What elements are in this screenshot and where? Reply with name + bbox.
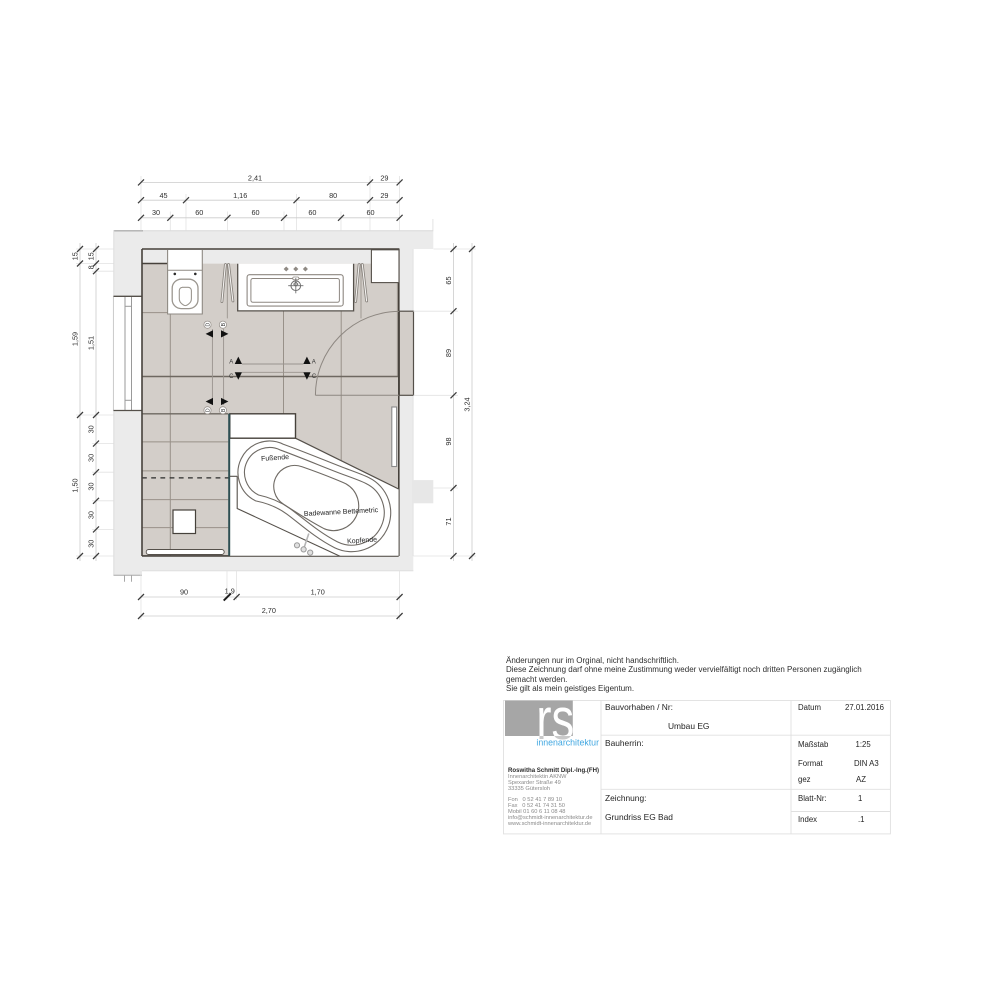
svg-text:D: D [206,408,212,412]
svg-text:80: 80 [329,191,337,200]
svg-text:1,59: 1,59 [71,332,80,346]
svg-text:1,51: 1,51 [86,336,95,350]
svg-text:B: B [221,323,227,327]
svg-text:15: 15 [71,252,80,260]
svg-text:innenarchitektur: innenarchitektur [536,737,599,747]
svg-text:30: 30 [86,511,95,519]
svg-text:30: 30 [86,540,95,548]
svg-text:A: A [312,360,316,366]
svg-text:2,41: 2,41 [248,174,262,183]
svg-text:60: 60 [251,208,259,217]
svg-text:29: 29 [380,174,388,183]
svg-text:30: 30 [152,208,160,217]
svg-text:2,70: 2,70 [262,606,276,615]
svg-text:15: 15 [86,252,95,260]
svg-text:B: B [221,408,227,412]
svg-text:8: 8 [86,265,95,269]
svg-text:1,50: 1,50 [71,478,80,492]
svg-text:D: D [206,323,212,327]
svg-text:1,16: 1,16 [233,191,247,200]
svg-text:1,9: 1,9 [225,587,235,596]
svg-text:90: 90 [180,587,188,596]
svg-text:60: 60 [195,208,203,217]
svg-text:65: 65 [444,276,453,284]
svg-text:60: 60 [308,208,316,217]
svg-text:30: 30 [86,425,95,433]
svg-text:A: A [229,360,233,366]
svg-text:C: C [229,374,234,380]
svg-text:89: 89 [444,349,453,357]
svg-text:29: 29 [380,191,388,200]
svg-text:C: C [312,374,317,380]
svg-text:71: 71 [444,517,453,525]
svg-text:3,24: 3,24 [462,397,471,411]
svg-text:1,70: 1,70 [311,587,325,596]
svg-text:45: 45 [159,191,167,200]
svg-text:30: 30 [86,482,95,490]
svg-text:30: 30 [86,454,95,462]
svg-text:98: 98 [444,437,453,445]
svg-text:60: 60 [366,208,374,217]
